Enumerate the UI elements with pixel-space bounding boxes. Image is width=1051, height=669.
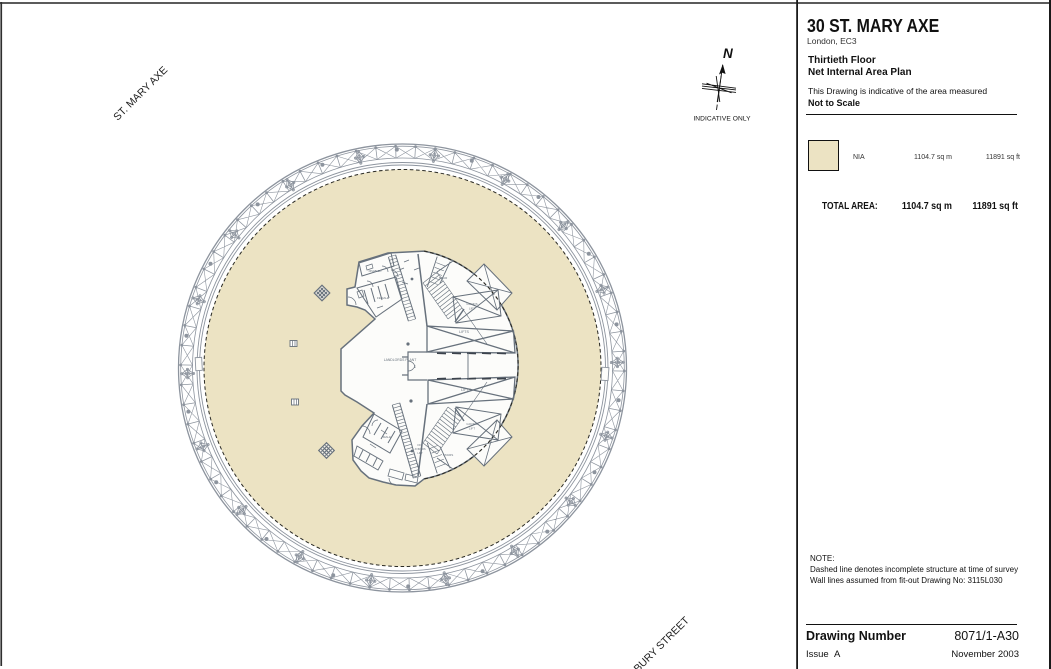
- svg-text:GOODS: GOODS: [466, 302, 477, 306]
- svg-text:LIFTS: LIFTS: [461, 388, 471, 392]
- svg-text:LIFTS: LIFTS: [459, 330, 469, 334]
- svg-text:DISABLED: DISABLED: [369, 269, 382, 273]
- svg-text:STAIRS: STAIRS: [443, 453, 454, 457]
- svg-text:BURY STREET: BURY STREET: [632, 614, 693, 669]
- svg-text:GOODS: GOODS: [466, 422, 477, 426]
- svg-text:LIFT: LIFT: [469, 307, 475, 311]
- svg-text:LIFT: LIFT: [417, 451, 423, 455]
- svg-text:JOINERS: JOINERS: [414, 447, 426, 451]
- svg-text:LANDLORDS PLANT: LANDLORDS PLANT: [384, 358, 417, 362]
- svg-text:STAIR: STAIR: [439, 276, 448, 280]
- svg-text:FEMALE: FEMALE: [377, 296, 389, 300]
- svg-text:ST. MARY AXE: ST. MARY AXE: [111, 64, 170, 123]
- svg-text:MALE: MALE: [383, 435, 391, 439]
- svg-text:INDICATIVE ONLY: INDICATIVE ONLY: [693, 116, 751, 123]
- svg-text:N: N: [723, 46, 733, 61]
- svg-text:LIFT: LIFT: [469, 427, 475, 431]
- svg-text:FFC: FFC: [417, 443, 422, 447]
